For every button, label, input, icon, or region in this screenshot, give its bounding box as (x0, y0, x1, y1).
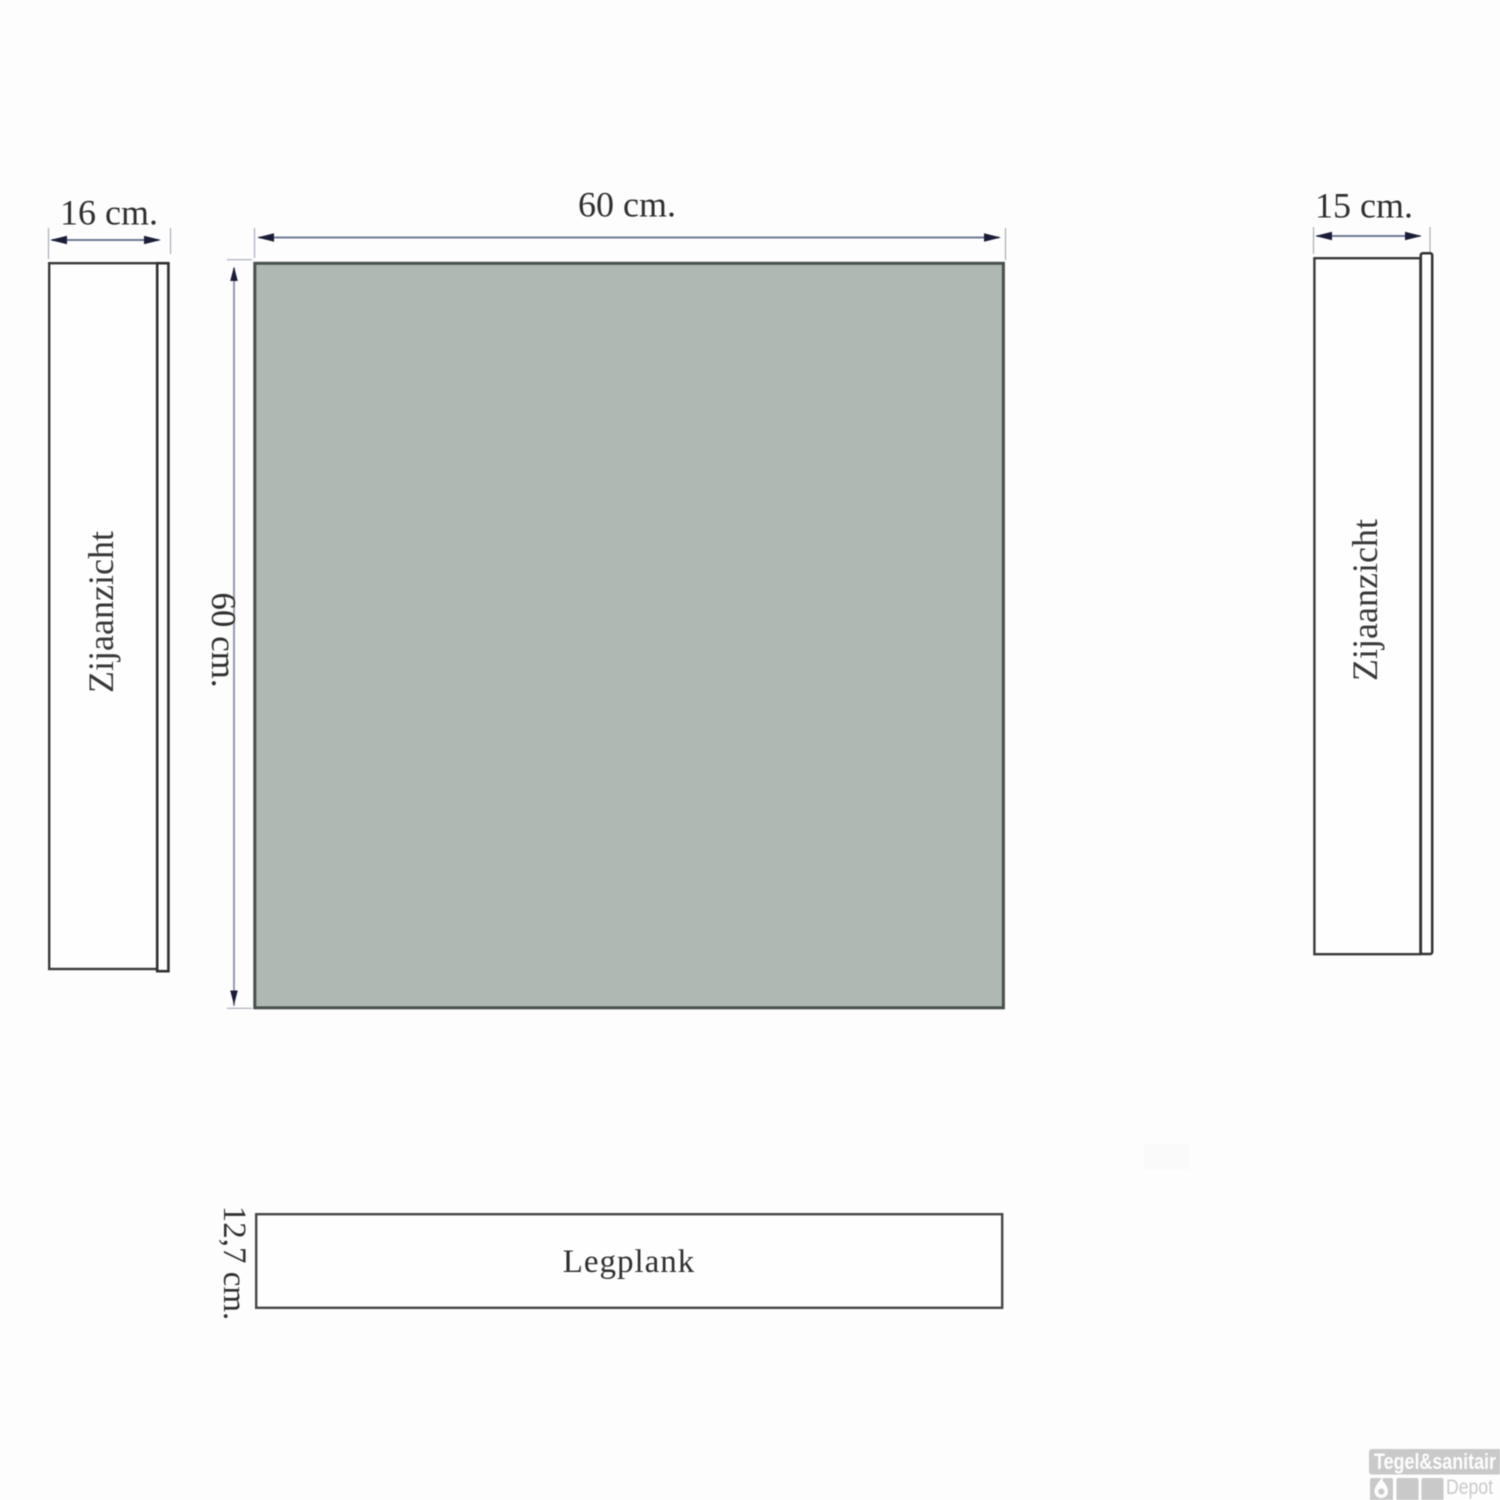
svg-text:Legplank: Legplank (563, 1244, 696, 1280)
svg-text:Tegel&sanitair: Tegel&sanitair (1374, 1449, 1496, 1474)
svg-text:Depot: Depot (1446, 1475, 1493, 1499)
svg-text:12,7 cm.: 12,7 cm. (216, 1206, 252, 1321)
svg-text:60 cm.: 60 cm. (578, 185, 676, 225)
svg-text:15 cm.: 15 cm. (1315, 186, 1413, 226)
svg-text:16 cm.: 16 cm. (60, 193, 158, 233)
svg-text:60 cm.: 60 cm. (204, 592, 243, 687)
svg-text:Zijaanzicht: Zijaanzicht (1345, 519, 1385, 681)
svg-text:Zijaanzicht: Zijaanzicht (81, 531, 121, 693)
